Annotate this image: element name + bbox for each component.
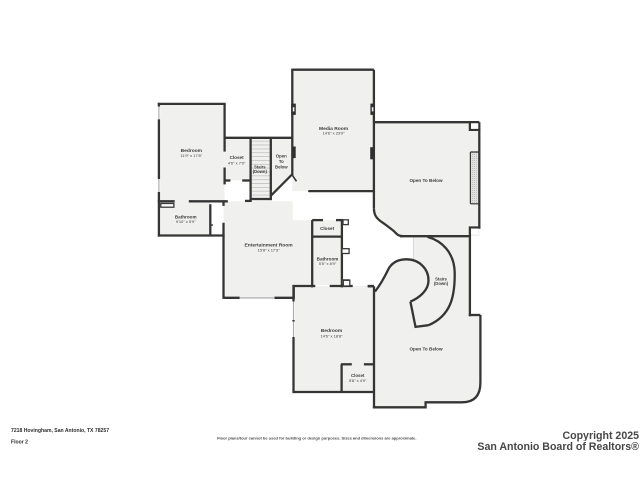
svg-text:7218 Hovingham, San Antonio, T: 7218 Hovingham, San Antonio, TX 78257 [11,428,109,434]
svg-text:Below: Below [275,165,288,170]
svg-text:5'5" x 8'9": 5'5" x 8'9" [319,261,337,266]
svg-text:4'6" x 7'0": 4'6" x 7'0" [228,160,246,165]
svg-text:Closet: Closet [230,155,245,160]
svg-text:14'6" x 23'9": 14'6" x 23'9" [323,131,346,136]
svg-text:5'8" x 4'9": 5'8" x 4'9" [349,378,367,383]
svg-text:Open To Below: Open To Below [409,346,443,351]
svg-text:(Down): (Down) [434,281,449,286]
svg-text:14'6" x 18'8": 14'6" x 18'8" [321,333,344,338]
svg-text:Open: Open [276,154,287,159]
svg-text:Closet: Closet [320,226,335,231]
svg-text:(Down): (Down) [253,169,268,174]
svg-text:15'8" x 17'3": 15'8" x 17'3" [258,247,281,252]
svg-text:Open To Below: Open To Below [409,178,443,183]
svg-text:9'10" x 5'9": 9'10" x 5'9" [176,219,196,224]
svg-text:To: To [279,159,284,164]
svg-text:Floor 2: Floor 2 [11,440,28,446]
svg-text:San Antonio Board of Realtors®: San Antonio Board of Realtors® [477,441,639,453]
svg-text:Copyright 2025: Copyright 2025 [562,430,639,442]
svg-text:Floor plans/tour cannot be use: Floor plans/tour cannot be used for buil… [217,436,416,441]
svg-text:11'9" x 17'8": 11'9" x 17'8" [180,153,202,158]
